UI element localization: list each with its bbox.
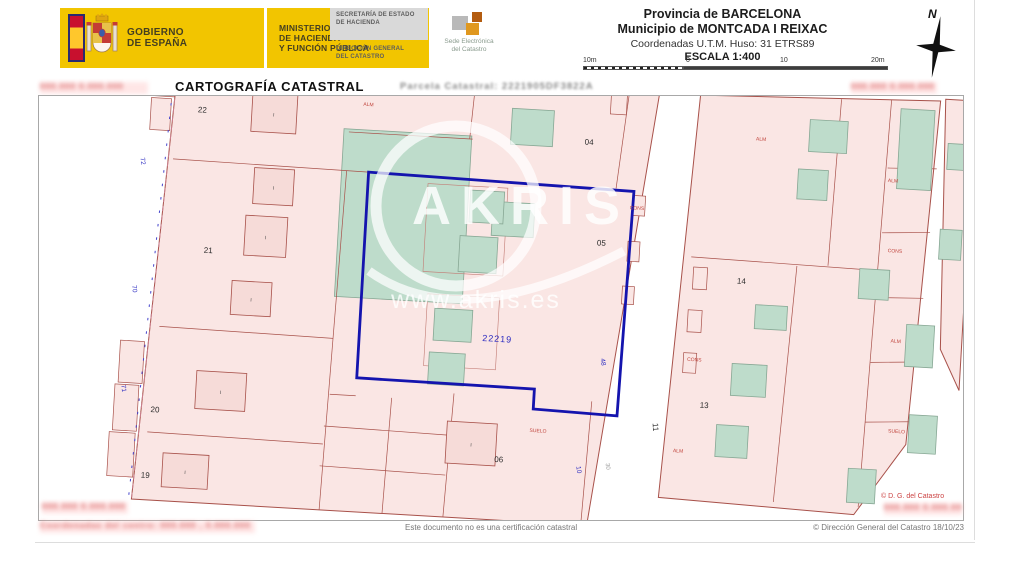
svg-text:ALM: ALM xyxy=(890,338,901,345)
svg-text:CONS: CONS xyxy=(888,248,903,255)
scalebar-tick-0: 0 xyxy=(686,57,690,64)
svg-text:SUELO: SUELO xyxy=(888,428,905,435)
parcel-number: 20 xyxy=(150,405,160,415)
redacted-coordinates-top-left: 000.000 0.000.000 xyxy=(40,82,148,94)
sede-electronica-logo: Sede Electrónica del Catastro xyxy=(428,12,510,54)
location-header: Provincia de BARCELONA Municipio de MONT… xyxy=(555,6,890,64)
watermark-brand: AKRIS xyxy=(412,176,630,236)
sede-label-2: del Catastro xyxy=(428,46,510,54)
parcel-number: 04 xyxy=(584,138,594,148)
parcel-number: 19 xyxy=(141,471,151,481)
svg-text:10: 10 xyxy=(574,466,582,474)
svg-text:SUELO: SUELO xyxy=(529,428,546,435)
disclaimer-text: Este documento no es una certificación c… xyxy=(405,523,577,532)
spain-flag-icon xyxy=(68,14,85,62)
redacted-coordinates-bottom-right: 000.000 0.000.000 xyxy=(884,503,962,515)
parcel-reference: Parcela Catastral: 2221905DF3822A xyxy=(400,81,594,92)
parcel-number: 13 xyxy=(699,401,709,411)
svg-text:70: 70 xyxy=(130,285,138,293)
cadastral-map: 22 21 20 19 04 05 06 13 14 11 I I I I xyxy=(38,95,964,521)
parcel-number: 14 xyxy=(737,277,747,287)
sede-label-1: Sede Electrónica xyxy=(428,38,510,46)
parcel-number: 21 xyxy=(204,246,214,256)
gobierno-box: GOBIERNO DE ESPAÑA xyxy=(60,8,264,68)
footer-copyright: © Dirección General del Catastro 18/10/2… xyxy=(760,523,964,532)
sheet-edge-right xyxy=(974,0,975,540)
cadastral-map-sheet: GOBIERNO DE ESPAÑA MINISTERIO DE HACIEND… xyxy=(0,0,1024,576)
svg-text:ALM: ALM xyxy=(673,448,684,455)
province-title: Provincia de BARCELONA xyxy=(555,6,890,22)
sheet-edge-bottom xyxy=(35,542,975,543)
scalebar-tick-10m: 10m xyxy=(583,57,597,64)
svg-text:48: 48 xyxy=(599,358,607,366)
parcel-number: 05 xyxy=(597,238,607,248)
highlighted-parcel-ref: 22219 xyxy=(482,333,513,345)
svg-text:ALM: ALM xyxy=(756,136,767,143)
svg-text:ALM: ALM xyxy=(888,178,899,185)
parcel-number: 11 xyxy=(651,423,661,432)
svg-text:CONS: CONS xyxy=(687,357,702,364)
sede-squares-icon xyxy=(444,12,494,38)
scalebar-solid xyxy=(683,66,888,70)
redacted-coordinates-top-right: 000.000 0.000.000 xyxy=(851,82,937,94)
map-copyright: © D. G. del Catastro xyxy=(881,492,944,500)
utm-coordinates-label: Coordenadas U.T.M. Huso: 31 ETRS89 xyxy=(555,37,890,51)
redacted-center-coordinates: Coordenadas del centro: 000.000 , 0.000.… xyxy=(40,521,255,533)
street-gray-label: 30 xyxy=(604,463,611,471)
scalebar-segmented xyxy=(583,66,683,70)
gobierno-title: GOBIERNO DE ESPAÑA xyxy=(127,27,187,49)
svg-text:CONS: CONS xyxy=(630,205,645,212)
svg-text:ALM: ALM xyxy=(363,102,374,109)
parcel-number: 06 xyxy=(494,455,504,465)
scale-bar: 10m 0 10 20m xyxy=(583,57,888,75)
compass-north-label: N xyxy=(928,7,937,21)
redacted-coordinates-bottom-left: 000.000 0.000.000 xyxy=(42,502,128,514)
direccion-general-label: DIRECCIÓN GENERAL DEL CATASTRO xyxy=(330,46,428,61)
compass-rose: N xyxy=(912,4,960,82)
watermark-url: www.akris.es xyxy=(390,286,561,314)
scalebar-tick-10: 10 xyxy=(780,57,788,64)
scalebar-tick-20m: 20m xyxy=(871,57,885,64)
municipality-title: Municipio de MONTCADA I REIXAC xyxy=(555,22,890,37)
svg-text:71: 71 xyxy=(119,384,127,392)
map-canvas: 22 21 20 19 04 05 06 13 14 11 I I I I xyxy=(39,96,963,520)
secretaria-box: SECRETARÍA DE ESTADO DE HACIENDA xyxy=(330,8,428,40)
coat-of-arms-icon xyxy=(85,13,119,63)
parcel-number: 22 xyxy=(198,105,208,115)
svg-text:72: 72 xyxy=(138,157,146,165)
compass-star-icon xyxy=(912,14,960,81)
page-title: CARTOGRAFÍA CATASTRAL xyxy=(175,79,364,94)
